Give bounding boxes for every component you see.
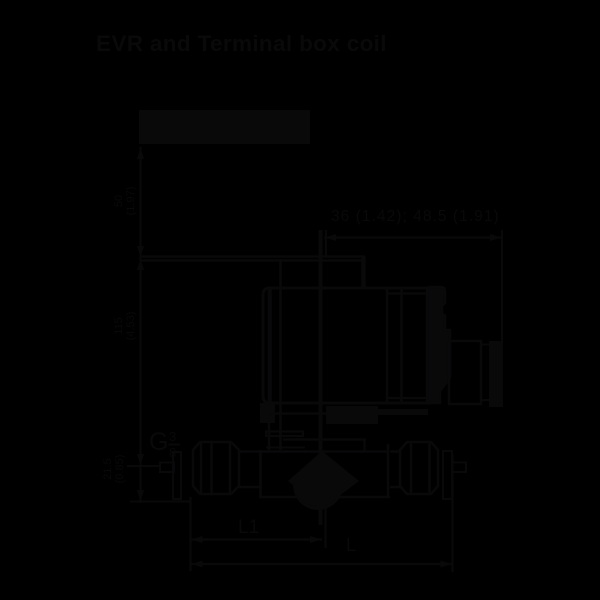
svg-text:(0.85): (0.85) [114,455,126,484]
svg-text:115: 115 [113,317,125,335]
svg-text:(4.53): (4.53) [125,312,137,341]
svg-text:21.5: 21.5 [102,458,114,479]
svg-text:36 (1.42); 48.5 (1.91): 36 (1.42); 48.5 (1.91) [331,208,500,225]
svg-text:L: L [346,535,356,555]
svg-text:EVR and Terminal box coil: EVR and Terminal box coil [96,31,387,56]
svg-text:3: 3 [169,429,176,444]
svg-text:L1: L1 [238,517,259,538]
svg-text:(1.97): (1.97) [125,187,137,216]
svg-text:G: G [149,428,168,456]
svg-text:50: 50 [113,195,125,207]
